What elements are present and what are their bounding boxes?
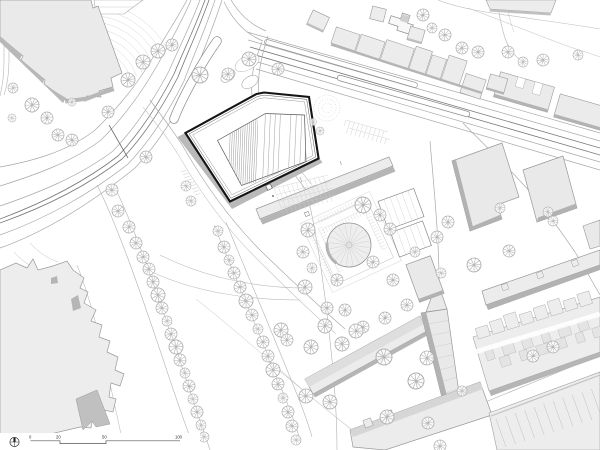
svg-text:50: 50 [102, 435, 107, 440]
svg-text:100: 100 [175, 435, 183, 440]
svg-text:20: 20 [56, 435, 61, 440]
